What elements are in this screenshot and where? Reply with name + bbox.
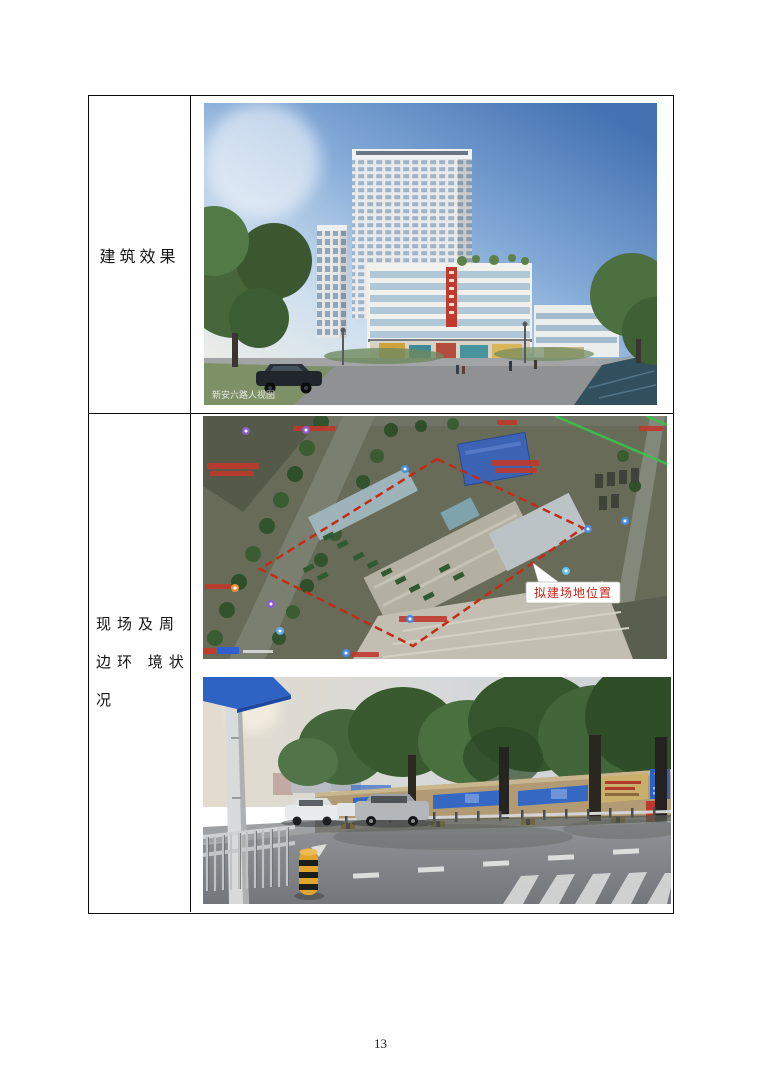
site-callout-label: 拟建场地位置 bbox=[534, 585, 612, 600]
site-label-line-2: 边环 境状 bbox=[96, 644, 190, 682]
table-row-site-environment: 现场及周 边环 境状 况 bbox=[89, 414, 673, 912]
red-vertical-sign bbox=[446, 267, 457, 327]
row2-header-cell: 现场及周 边环 境状 况 bbox=[89, 414, 191, 912]
left-tower bbox=[317, 225, 347, 338]
site-label-line-3: 况 bbox=[96, 682, 117, 720]
site-images-cell: 拟建场地位置 bbox=[191, 414, 673, 912]
building-rendering-image: 新安六路人视图 bbox=[204, 103, 657, 405]
row1-header-cell: 建筑效果 bbox=[89, 96, 191, 413]
building-effect-label: 建筑效果 bbox=[99, 243, 179, 267]
site-label-line-1: 现场及周 bbox=[96, 606, 180, 644]
image-gap bbox=[203, 659, 673, 677]
info-table: 建筑效果 bbox=[88, 95, 674, 914]
midrise-building bbox=[367, 254, 532, 353]
document-page: 建筑效果 bbox=[0, 0, 761, 1077]
page-number: 13 bbox=[0, 1036, 761, 1052]
street-photo-image bbox=[203, 677, 671, 904]
table-row-building-effect: 建筑效果 bbox=[89, 96, 673, 414]
building-rendering-cell: 新安六路人视图 bbox=[191, 96, 673, 413]
satellite-map-image: 拟建场地位置 bbox=[203, 416, 667, 659]
rendering-watermark: 新安六路人视图 bbox=[212, 389, 275, 400]
